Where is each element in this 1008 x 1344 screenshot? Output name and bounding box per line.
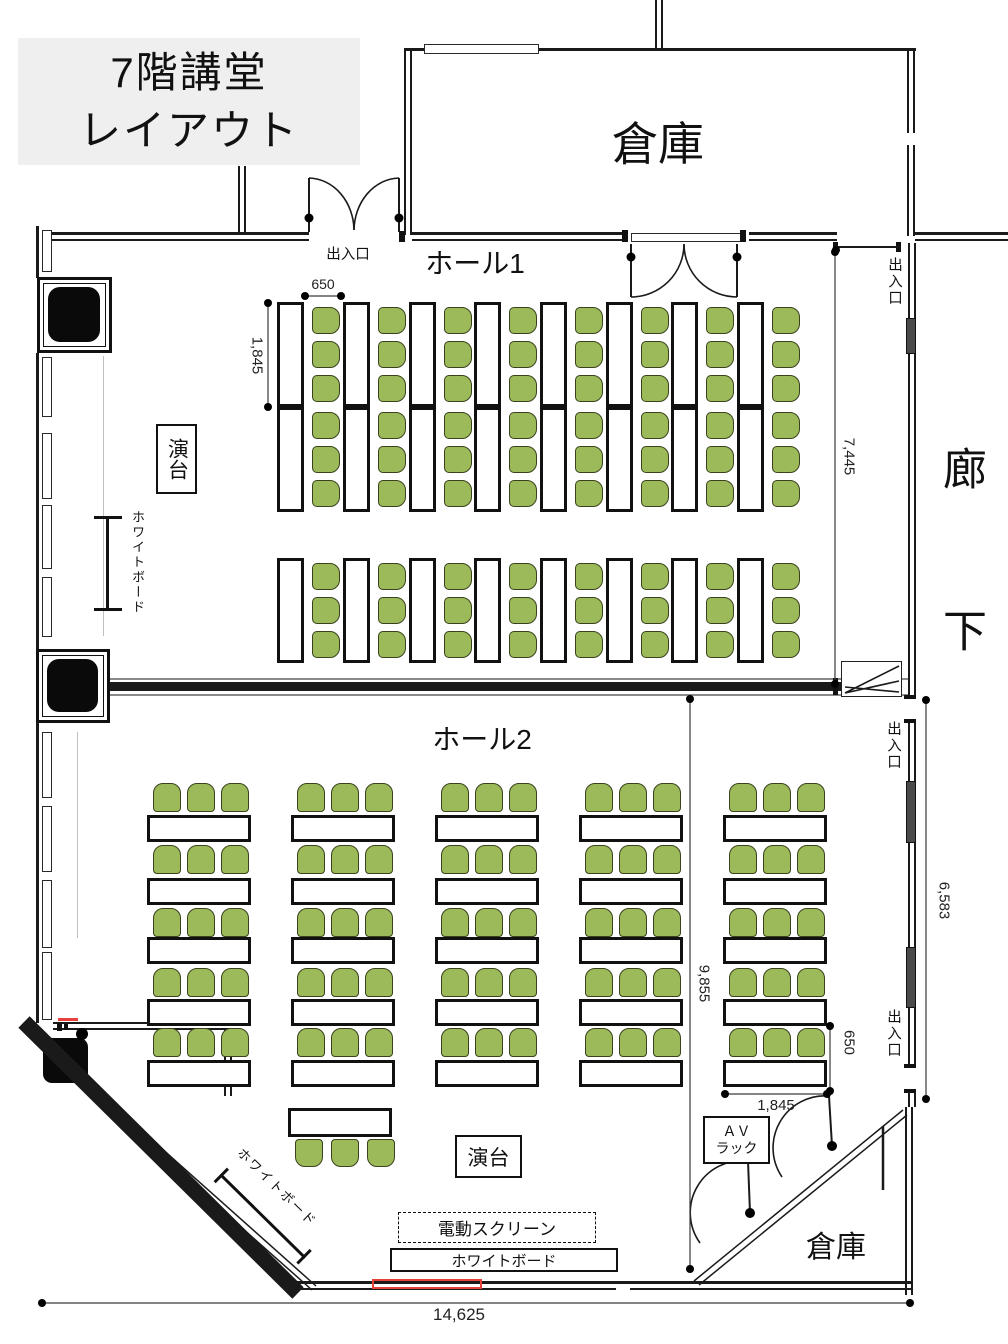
chair — [444, 341, 472, 368]
chair — [441, 968, 469, 997]
table — [540, 407, 567, 512]
chair — [187, 1028, 215, 1057]
electric-screen: 電動スクリーン — [398, 1212, 596, 1243]
chair — [378, 631, 406, 658]
chair — [365, 1028, 393, 1057]
pillar — [47, 659, 98, 712]
wall-segment — [908, 722, 910, 781]
table — [723, 878, 827, 905]
whiteboard-bottom-label: ホワイトボード — [451, 1250, 556, 1271]
chair — [441, 783, 469, 812]
wall-segment — [661, 0, 663, 49]
door-jamb — [904, 695, 916, 699]
chair — [509, 563, 537, 590]
chair — [641, 563, 669, 590]
dimension-dot — [745, 1208, 755, 1218]
av-rack-label-line1: ＡＶ — [723, 1123, 751, 1141]
chair — [797, 908, 825, 937]
window-slat — [42, 230, 52, 272]
chair — [619, 968, 647, 997]
chair — [585, 783, 613, 812]
chair — [509, 446, 537, 473]
wall-segment — [908, 1093, 910, 1107]
chair — [763, 1028, 791, 1057]
room-label-hall1: ホール1 — [405, 242, 545, 282]
whiteboard-hall2-label: ホワイトボード — [234, 1143, 347, 1255]
window-slat — [42, 732, 52, 798]
chair — [509, 480, 537, 507]
wall-segment — [412, 239, 624, 241]
table — [606, 407, 633, 512]
window-slat — [42, 505, 52, 569]
table — [579, 815, 683, 842]
chair — [365, 908, 393, 937]
window-slat — [424, 44, 539, 54]
chair — [475, 968, 503, 997]
chair — [297, 783, 325, 812]
chair — [475, 1028, 503, 1057]
chair — [763, 908, 791, 937]
table — [540, 302, 567, 407]
dimension-dot — [686, 695, 694, 703]
table — [288, 1108, 392, 1137]
table — [277, 558, 304, 663]
wall-segment — [36, 226, 39, 278]
dimension-dot — [305, 214, 314, 223]
chair — [729, 908, 757, 937]
dimension-dot — [826, 1087, 834, 1095]
chair — [312, 563, 340, 590]
room-label-storage-bottom: 倉庫 — [775, 1222, 897, 1266]
interior-wall-face — [77, 732, 78, 938]
door-jamb — [896, 242, 901, 252]
podium-hall1: 演台 — [156, 424, 197, 494]
chair — [509, 908, 537, 937]
wall-segment — [238, 166, 240, 232]
door-jamb — [64, 1024, 68, 1030]
chair — [575, 480, 603, 507]
table — [291, 999, 395, 1026]
dimension-dot — [686, 1265, 694, 1273]
table — [474, 558, 501, 663]
av-rack-label-line2: ラック — [716, 1140, 758, 1158]
window-slat — [42, 357, 52, 417]
chair — [772, 307, 800, 334]
chair — [221, 845, 249, 874]
table — [435, 878, 539, 905]
wall-segment — [410, 50, 412, 235]
chair — [444, 631, 472, 658]
table — [737, 407, 764, 512]
chair — [772, 480, 800, 507]
chair — [444, 597, 472, 624]
chair — [509, 783, 537, 812]
chair — [312, 597, 340, 624]
chair — [312, 446, 340, 473]
chair — [585, 845, 613, 874]
chair — [585, 968, 613, 997]
exit-label-bottom-right: 出入口 — [883, 1009, 904, 1059]
dimension-dot — [823, 1090, 831, 1098]
table — [723, 1060, 827, 1087]
chair — [653, 1028, 681, 1057]
dimension-dot — [264, 299, 272, 307]
drawing-title: 7階講堂 レイアウト — [18, 38, 360, 165]
chair — [509, 412, 537, 439]
dim-650-right: 650 — [841, 1012, 858, 1074]
wall-segment — [244, 166, 246, 232]
chair — [729, 968, 757, 997]
chair — [509, 631, 537, 658]
chair — [312, 375, 340, 402]
chair — [312, 480, 340, 507]
chair — [653, 908, 681, 937]
chair — [312, 631, 340, 658]
podium-hall2: 演台 — [455, 1135, 522, 1178]
chair — [187, 968, 215, 997]
table — [474, 302, 501, 407]
chair — [378, 341, 406, 368]
chair — [509, 375, 537, 402]
wall-segment — [630, 1288, 912, 1290]
chair — [378, 480, 406, 507]
wall-segment — [412, 232, 624, 235]
wall-segment — [749, 239, 837, 241]
chair — [365, 968, 393, 997]
chair — [772, 375, 800, 402]
drawing-title-line1: 7階講堂 — [110, 44, 267, 102]
chair — [772, 341, 800, 368]
pillar — [48, 287, 100, 342]
whiteboard-cap — [94, 608, 122, 611]
chair — [441, 908, 469, 937]
window-slat — [42, 433, 52, 499]
chair — [763, 968, 791, 997]
table — [671, 302, 698, 407]
chair — [641, 307, 669, 334]
chair — [221, 908, 249, 937]
red-mark-bracket — [372, 1279, 482, 1289]
pillar — [43, 1038, 88, 1083]
chair — [444, 446, 472, 473]
table — [723, 815, 827, 842]
podium-hall1-label: 演台 — [162, 438, 192, 480]
chair — [509, 307, 537, 334]
dimension-dot — [906, 1299, 914, 1307]
door-jamb — [904, 1089, 916, 1093]
wall-segment — [36, 722, 39, 1023]
wall-segment — [908, 843, 910, 947]
chair — [221, 968, 249, 997]
room-label-corridor: 廊下 — [928, 446, 992, 770]
door-jamb — [740, 230, 746, 242]
chair — [365, 845, 393, 874]
whiteboard-hall1-label: ホワイトボード — [128, 510, 147, 615]
chair — [575, 597, 603, 624]
window-dark — [906, 947, 916, 1008]
table — [343, 558, 370, 663]
table — [277, 302, 304, 407]
wall-segment — [908, 243, 910, 318]
chair — [312, 341, 340, 368]
chair — [641, 375, 669, 402]
chair — [378, 446, 406, 473]
chair — [772, 446, 800, 473]
table — [343, 302, 370, 407]
table — [723, 999, 827, 1026]
chair — [763, 845, 791, 874]
door-jamb — [622, 230, 628, 242]
chair — [509, 597, 537, 624]
chair — [706, 563, 734, 590]
chair — [729, 1028, 757, 1057]
chair — [187, 783, 215, 812]
window-slat — [631, 233, 741, 242]
chair — [575, 412, 603, 439]
table — [737, 558, 764, 663]
window-slat — [42, 880, 52, 948]
chair — [441, 1028, 469, 1057]
chair — [441, 845, 469, 874]
table — [435, 937, 539, 964]
chair — [619, 1028, 647, 1057]
chair — [221, 783, 249, 812]
wall-segment — [914, 722, 916, 781]
room-label-hall2: ホール2 — [412, 718, 552, 758]
dimension-dot — [264, 403, 272, 411]
chair — [297, 968, 325, 997]
wall-segment — [915, 239, 1008, 241]
table — [291, 815, 395, 842]
door-jamb — [904, 1064, 916, 1068]
chair — [772, 631, 800, 658]
chair — [575, 563, 603, 590]
storage2-door-leaf — [829, 1096, 832, 1146]
table — [147, 878, 251, 905]
chair — [585, 908, 613, 937]
hall-divider-face — [88, 694, 908, 696]
chair — [378, 307, 406, 334]
table — [579, 1060, 683, 1087]
window-dark — [906, 781, 916, 843]
table — [737, 302, 764, 407]
entrance-door-arc — [354, 178, 399, 230]
whiteboard-bottom: ホワイトボード — [390, 1248, 618, 1272]
chair — [729, 845, 757, 874]
chair — [367, 1139, 395, 1167]
chair — [619, 908, 647, 937]
wall-segment — [655, 0, 657, 49]
wall-segment — [36, 353, 39, 650]
wall-segment — [905, 1107, 907, 1295]
dimension-dot — [38, 1299, 46, 1307]
table — [435, 1060, 539, 1087]
window-slat — [42, 952, 52, 1020]
podium-hall2-label: 演台 — [468, 1142, 510, 1172]
chair — [575, 307, 603, 334]
dimension-dot — [827, 1141, 837, 1151]
whiteboard-line — [106, 516, 109, 611]
wall-segment — [915, 232, 1008, 235]
chair — [797, 968, 825, 997]
table — [579, 878, 683, 905]
wall-segment — [908, 354, 910, 697]
chair — [575, 446, 603, 473]
dimension-dot — [826, 1022, 834, 1030]
dimension-dot — [627, 253, 636, 262]
door-jamb — [399, 231, 405, 242]
table — [474, 407, 501, 512]
chair — [378, 375, 406, 402]
chair — [797, 845, 825, 874]
table — [579, 999, 683, 1026]
table — [723, 937, 827, 964]
dim-9855: 9,855 — [696, 953, 713, 1015]
chair — [297, 1028, 325, 1057]
chair — [475, 845, 503, 874]
table — [343, 407, 370, 512]
chair — [772, 597, 800, 624]
table — [291, 1060, 395, 1087]
table — [606, 558, 633, 663]
door-jamb — [904, 719, 916, 723]
chair — [763, 783, 791, 812]
table — [435, 999, 539, 1026]
table — [409, 407, 436, 512]
hall-divider-wall — [88, 682, 845, 691]
chair — [575, 341, 603, 368]
chair — [331, 783, 359, 812]
chair — [378, 412, 406, 439]
chair — [153, 845, 181, 874]
chair — [509, 845, 537, 874]
chair — [221, 1028, 249, 1057]
chair — [444, 307, 472, 334]
table — [671, 407, 698, 512]
chair — [312, 412, 340, 439]
storage2-door-arc — [690, 1161, 748, 1243]
storage-door-arc — [631, 244, 684, 297]
chair — [575, 631, 603, 658]
wall-segment — [749, 232, 837, 235]
wall-segment — [914, 1093, 916, 1107]
chair — [729, 783, 757, 812]
table — [435, 815, 539, 842]
storage2-door-leaf — [748, 1161, 750, 1213]
table — [147, 815, 251, 842]
exit-label-top-right: 出入口 — [884, 257, 905, 307]
chair — [444, 563, 472, 590]
chair — [444, 412, 472, 439]
window-slat — [42, 806, 52, 872]
chair — [444, 480, 472, 507]
chair — [509, 341, 537, 368]
hall-divider-face — [88, 678, 908, 680]
dim-650-top: 650 — [299, 276, 347, 292]
window-dark — [906, 318, 916, 354]
table — [147, 999, 251, 1026]
chair — [706, 341, 734, 368]
table — [291, 937, 395, 964]
dim-1845-bottom: 1,845 — [740, 1097, 812, 1114]
storage-door-arc — [684, 244, 737, 297]
table — [540, 558, 567, 663]
chair — [331, 845, 359, 874]
chair — [641, 597, 669, 624]
door-jamb — [833, 242, 838, 252]
exit-label-mid-right: 出入口 — [883, 721, 904, 771]
dim-1845-left: 1,845 — [249, 325, 266, 387]
table — [409, 302, 436, 407]
chair — [153, 783, 181, 812]
whiteboard-hall2-symbol — [220, 1174, 306, 1259]
chair — [475, 783, 503, 812]
table — [606, 302, 633, 407]
wall-segment — [50, 232, 309, 235]
chair — [475, 908, 503, 937]
chair — [706, 480, 734, 507]
wall-segment — [50, 239, 309, 241]
chair — [641, 412, 669, 439]
dimension-dot — [301, 292, 309, 300]
room-label-storage-top: 倉庫 — [558, 108, 758, 174]
dim-14625: 14,625 — [414, 1305, 504, 1325]
whiteboard-line — [220, 1174, 306, 1259]
chair — [706, 412, 734, 439]
drawing-title-line2: レイアウト — [79, 102, 299, 160]
chair — [706, 631, 734, 658]
wall-segment — [911, 1107, 913, 1295]
chair — [797, 1028, 825, 1057]
chair — [641, 631, 669, 658]
electric-screen-label: 電動スクリーン — [438, 1215, 556, 1240]
window-slat — [42, 577, 52, 637]
chair — [153, 908, 181, 937]
dimension-dot — [721, 1090, 729, 1098]
door-jamb — [57, 1023, 62, 1031]
chair — [331, 968, 359, 997]
door-jamb — [833, 678, 838, 695]
chair — [619, 845, 647, 874]
entrance-door-arc — [309, 178, 354, 230]
chair — [797, 783, 825, 812]
chair — [331, 908, 359, 937]
dimension-dot — [337, 292, 345, 300]
wall-segment — [914, 843, 916, 947]
chair — [641, 341, 669, 368]
chair — [772, 563, 800, 590]
chair — [378, 597, 406, 624]
floor-plan: 7階講堂 レイアウト 倉庫 ホール1 ホール2 廊下 倉庫 出入口 出入口 出入… — [0, 0, 1008, 1344]
table — [277, 407, 304, 512]
chair — [187, 908, 215, 937]
table — [147, 1060, 251, 1087]
chair — [706, 307, 734, 334]
wall-segment — [914, 243, 916, 318]
wall-segment — [914, 1008, 916, 1068]
chair — [295, 1139, 323, 1167]
table — [579, 937, 683, 964]
chair — [312, 307, 340, 334]
chair — [153, 968, 181, 997]
table — [291, 878, 395, 905]
table — [671, 558, 698, 663]
dimension-dot — [733, 253, 742, 262]
table — [409, 558, 436, 663]
chair — [444, 375, 472, 402]
chair — [153, 1028, 181, 1057]
av-rack: ＡＶ ラック — [703, 1116, 770, 1164]
